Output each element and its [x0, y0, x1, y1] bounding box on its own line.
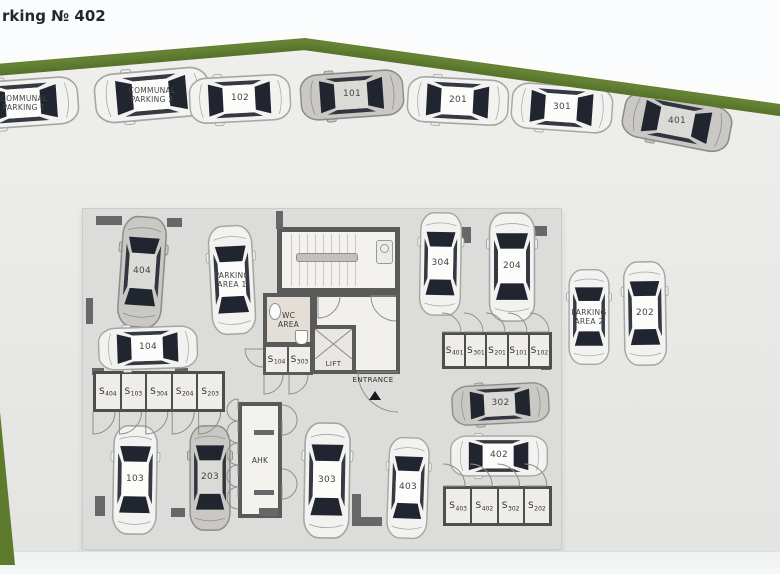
entrance-label: ENTRANCE — [344, 376, 402, 384]
wall-segment — [171, 508, 185, 517]
car-104: 104 — [96, 322, 200, 374]
storage-unit-s204: S204 — [171, 374, 197, 409]
storage-row-mid-right: S401S301S201S101S102 — [442, 332, 552, 369]
storage-label: S — [528, 501, 534, 511]
wall-segment — [254, 490, 274, 495]
storage-label: S — [201, 387, 207, 397]
page-title: rking № 402 — [2, 7, 106, 25]
car-203: 203 — [187, 424, 233, 532]
car-403: 403 — [383, 435, 433, 541]
storage-unit-s302: S302 — [497, 489, 523, 523]
storage-unit-s202: S202 — [523, 489, 549, 523]
car-201: 201 — [405, 72, 512, 129]
storage-row-bottom-right: S403S402S302S202 — [443, 486, 552, 526]
storage-label: S — [467, 346, 473, 356]
car-communal-parking-1: COMMUNALPARKING 1 — [0, 72, 82, 134]
wall-segment — [276, 211, 283, 229]
storage-unit-s304: S304 — [145, 374, 171, 409]
lift-room: LIFT — [311, 325, 356, 374]
storage-unit-s104: S104 — [266, 347, 287, 372]
storage-unit-s203: S203 — [196, 374, 222, 409]
storage-label: S — [125, 387, 131, 397]
storage-label: S — [476, 501, 482, 511]
storage-unit-s303: S303 — [287, 347, 310, 372]
car-parking-area-2: PARKINGAREA 2 — [566, 268, 612, 366]
storage-unit-s404: S404 — [96, 374, 120, 409]
ahk-room: AHK — [238, 402, 282, 518]
wall-segment — [95, 496, 105, 516]
core-storage-cells: S104 S303 — [263, 344, 313, 375]
parking-plan-page: { "page": { "title": "rking № 402" }, "c… — [0, 0, 780, 573]
car-202: 202 — [620, 259, 670, 367]
car-101: 101 — [297, 65, 406, 124]
car-302: 302 — [449, 379, 551, 429]
wall-segment — [352, 517, 382, 526]
storage-label: S — [449, 501, 455, 511]
stairs-room — [277, 227, 400, 293]
storage-unit-s201: S201 — [485, 335, 506, 366]
stairs-handrail — [296, 253, 358, 262]
stairs-fixture — [376, 240, 393, 264]
car-404: 404 — [113, 213, 171, 330]
wall-segment — [86, 298, 93, 324]
storage-label: S — [531, 346, 537, 356]
storage-unit-s301: S301 — [464, 335, 485, 366]
storage-unit-s101: S101 — [507, 335, 528, 366]
car-204: 204 — [486, 211, 538, 323]
storage-label: S — [99, 387, 105, 397]
ahk-label: AHK — [242, 406, 278, 514]
storage-label: S — [488, 346, 494, 356]
page-bottom-strip — [0, 551, 780, 574]
wall-segment — [254, 430, 274, 435]
storage-unit-s102: S102 — [528, 335, 549, 366]
car-103: 103 — [109, 424, 161, 537]
storage-unit-s402: S402 — [470, 489, 496, 523]
storage-unit-s401: S401 — [445, 335, 464, 366]
wc-area-label: WC AREA — [267, 297, 310, 342]
entrance-arrow-icon — [369, 391, 381, 400]
storage-unit-s403: S403 — [446, 489, 470, 523]
storage-label: S — [446, 346, 452, 356]
storage-row-left: S404S103S304S204S203 — [93, 371, 225, 412]
wall-segment — [259, 508, 278, 516]
storage-label: S — [176, 387, 182, 397]
lift-cross-icon — [315, 329, 352, 359]
storage-label: S — [150, 387, 156, 397]
car-304: 304 — [416, 211, 465, 318]
car-102: 102 — [187, 70, 294, 127]
storage-unit-s103: S103 — [120, 374, 146, 409]
car-303: 303 — [300, 420, 354, 540]
car-parking-area-1: PARKINGAREA 1 — [204, 223, 260, 337]
wall-segment — [96, 216, 122, 225]
lift-label: LIFT — [315, 360, 352, 368]
storage-label: S — [509, 346, 515, 356]
car-402: 402 — [449, 433, 549, 479]
wc-area-room: WC AREA — [263, 293, 314, 346]
storage-label: S — [502, 501, 508, 511]
